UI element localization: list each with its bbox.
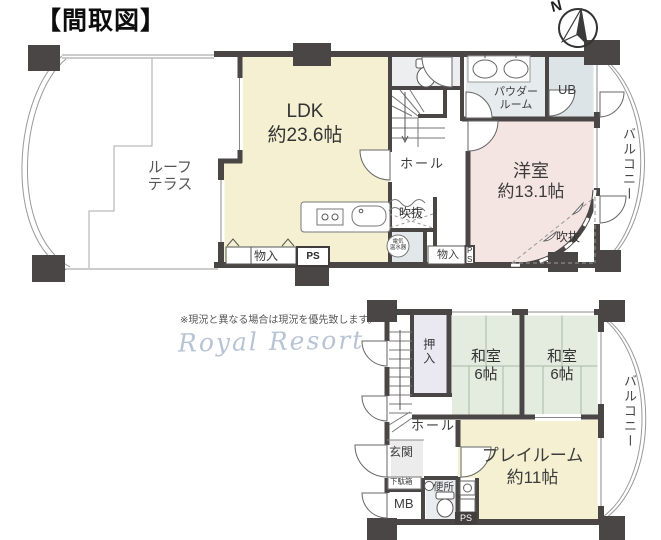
western-room-area-label: 約13.1帖	[471, 182, 591, 202]
ps-right-label: PS	[465, 246, 474, 264]
closet-label: 押入	[421, 338, 435, 366]
water-heater-label: 電気 温水器	[387, 239, 409, 252]
sink-icon	[352, 206, 386, 226]
lower-toilet-label: 便所	[433, 481, 454, 493]
page-title: 【間取図】	[36, 7, 166, 36]
upper-balcony-label: バルコニー	[620, 127, 635, 202]
stove-icon	[317, 209, 343, 225]
lower-ps-label: PS	[455, 512, 477, 524]
ldk-name-label: LDK	[245, 101, 365, 123]
powder-room-label: パウダー ルーム	[485, 86, 547, 111]
ldk-area-label: 約23.6帖	[235, 125, 375, 147]
entrance-label: 玄関	[389, 446, 413, 460]
upper-hall-label: ホール	[400, 157, 445, 172]
japanese-room1-area-label: 6帖	[452, 366, 520, 383]
meter-box-label: MB	[394, 497, 414, 512]
stairs-lower	[389, 330, 412, 432]
roof-terrace-label: ルーフ テラス	[138, 159, 202, 194]
japanese-room1-name-label: 和室	[452, 348, 520, 365]
ps-left-label: PS	[296, 246, 330, 267]
lower-hall-label: ホール	[411, 419, 456, 434]
ub-label: UB	[558, 83, 576, 98]
playroom-name-label: プレイルーム	[470, 446, 595, 466]
lower-balcony-label: バルコニー	[621, 374, 636, 449]
void-right-label: 吹抜	[556, 231, 580, 245]
japanese-room2-area-label: 6帖	[525, 366, 599, 383]
western-room-name-label: 洋室	[481, 161, 581, 182]
storage-right-label: 物入	[430, 249, 466, 262]
kitchen-counter-icon	[301, 202, 390, 232]
playroom-area-label: 約11帖	[470, 468, 595, 488]
storage-left-label: 物入	[254, 250, 278, 264]
void-left-label: 吹抜	[399, 207, 423, 221]
stairs-upper	[392, 90, 445, 147]
floorplan-page: 【間取図】 N ルーフ テラス LDK 約23.6帖 ホール パウダー ルーム …	[0, 0, 661, 540]
japanese-room2-name-label: 和室	[525, 348, 599, 365]
washbasin-icons	[468, 55, 530, 82]
shoe-box-label: 下駄箱	[390, 478, 413, 487]
brand-logo: Royal Resort	[178, 326, 365, 358]
